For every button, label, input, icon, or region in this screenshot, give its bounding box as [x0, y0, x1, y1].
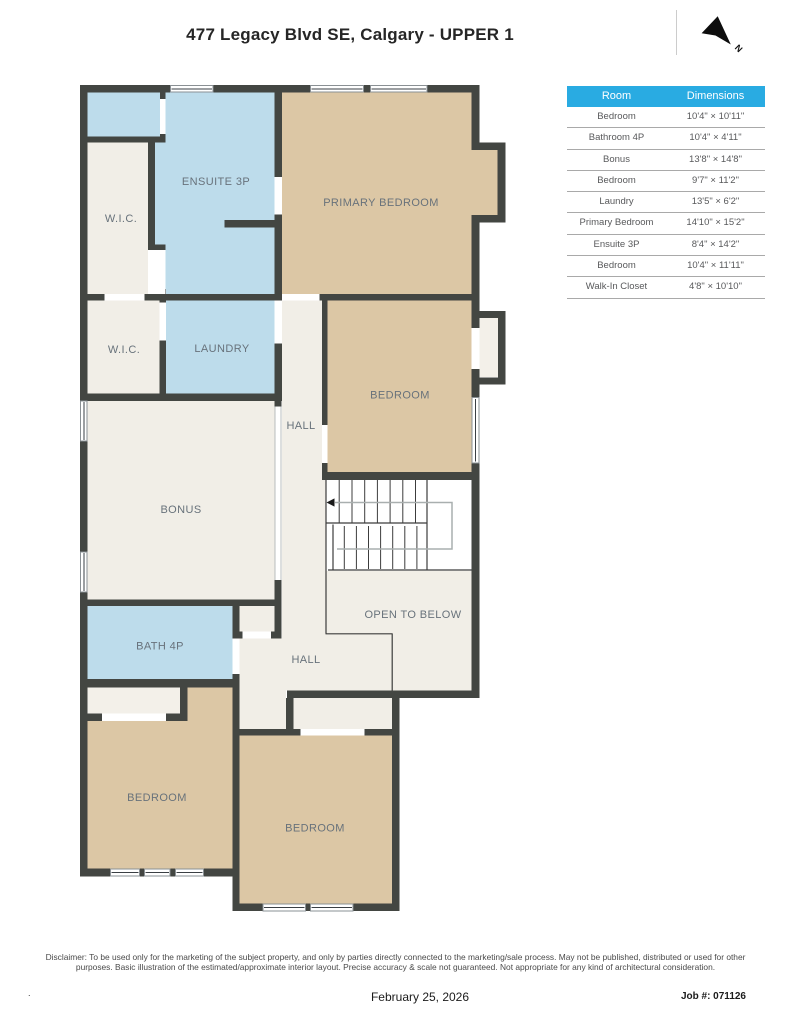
svg-text:OPEN TO BELOW: OPEN TO BELOW	[364, 609, 461, 621]
svg-text:BEDROOM: BEDROOM	[285, 823, 345, 835]
svg-text:HALL: HALL	[286, 420, 315, 432]
svg-text:BONUS: BONUS	[160, 504, 201, 516]
svg-text:BATH 4P: BATH 4P	[136, 641, 184, 653]
svg-text:W.I.C.: W.I.C.	[108, 344, 140, 356]
svg-text:BEDROOM: BEDROOM	[370, 390, 430, 402]
svg-text:W.I.C.: W.I.C.	[105, 213, 137, 225]
svg-text:PRIMARY BEDROOM: PRIMARY BEDROOM	[323, 197, 439, 209]
svg-text:ENSUITE 3P: ENSUITE 3P	[182, 176, 250, 188]
svg-text:LAUNDRY: LAUNDRY	[194, 343, 249, 355]
svg-text:HALL: HALL	[291, 654, 320, 666]
svg-text:BEDROOM: BEDROOM	[127, 792, 187, 804]
